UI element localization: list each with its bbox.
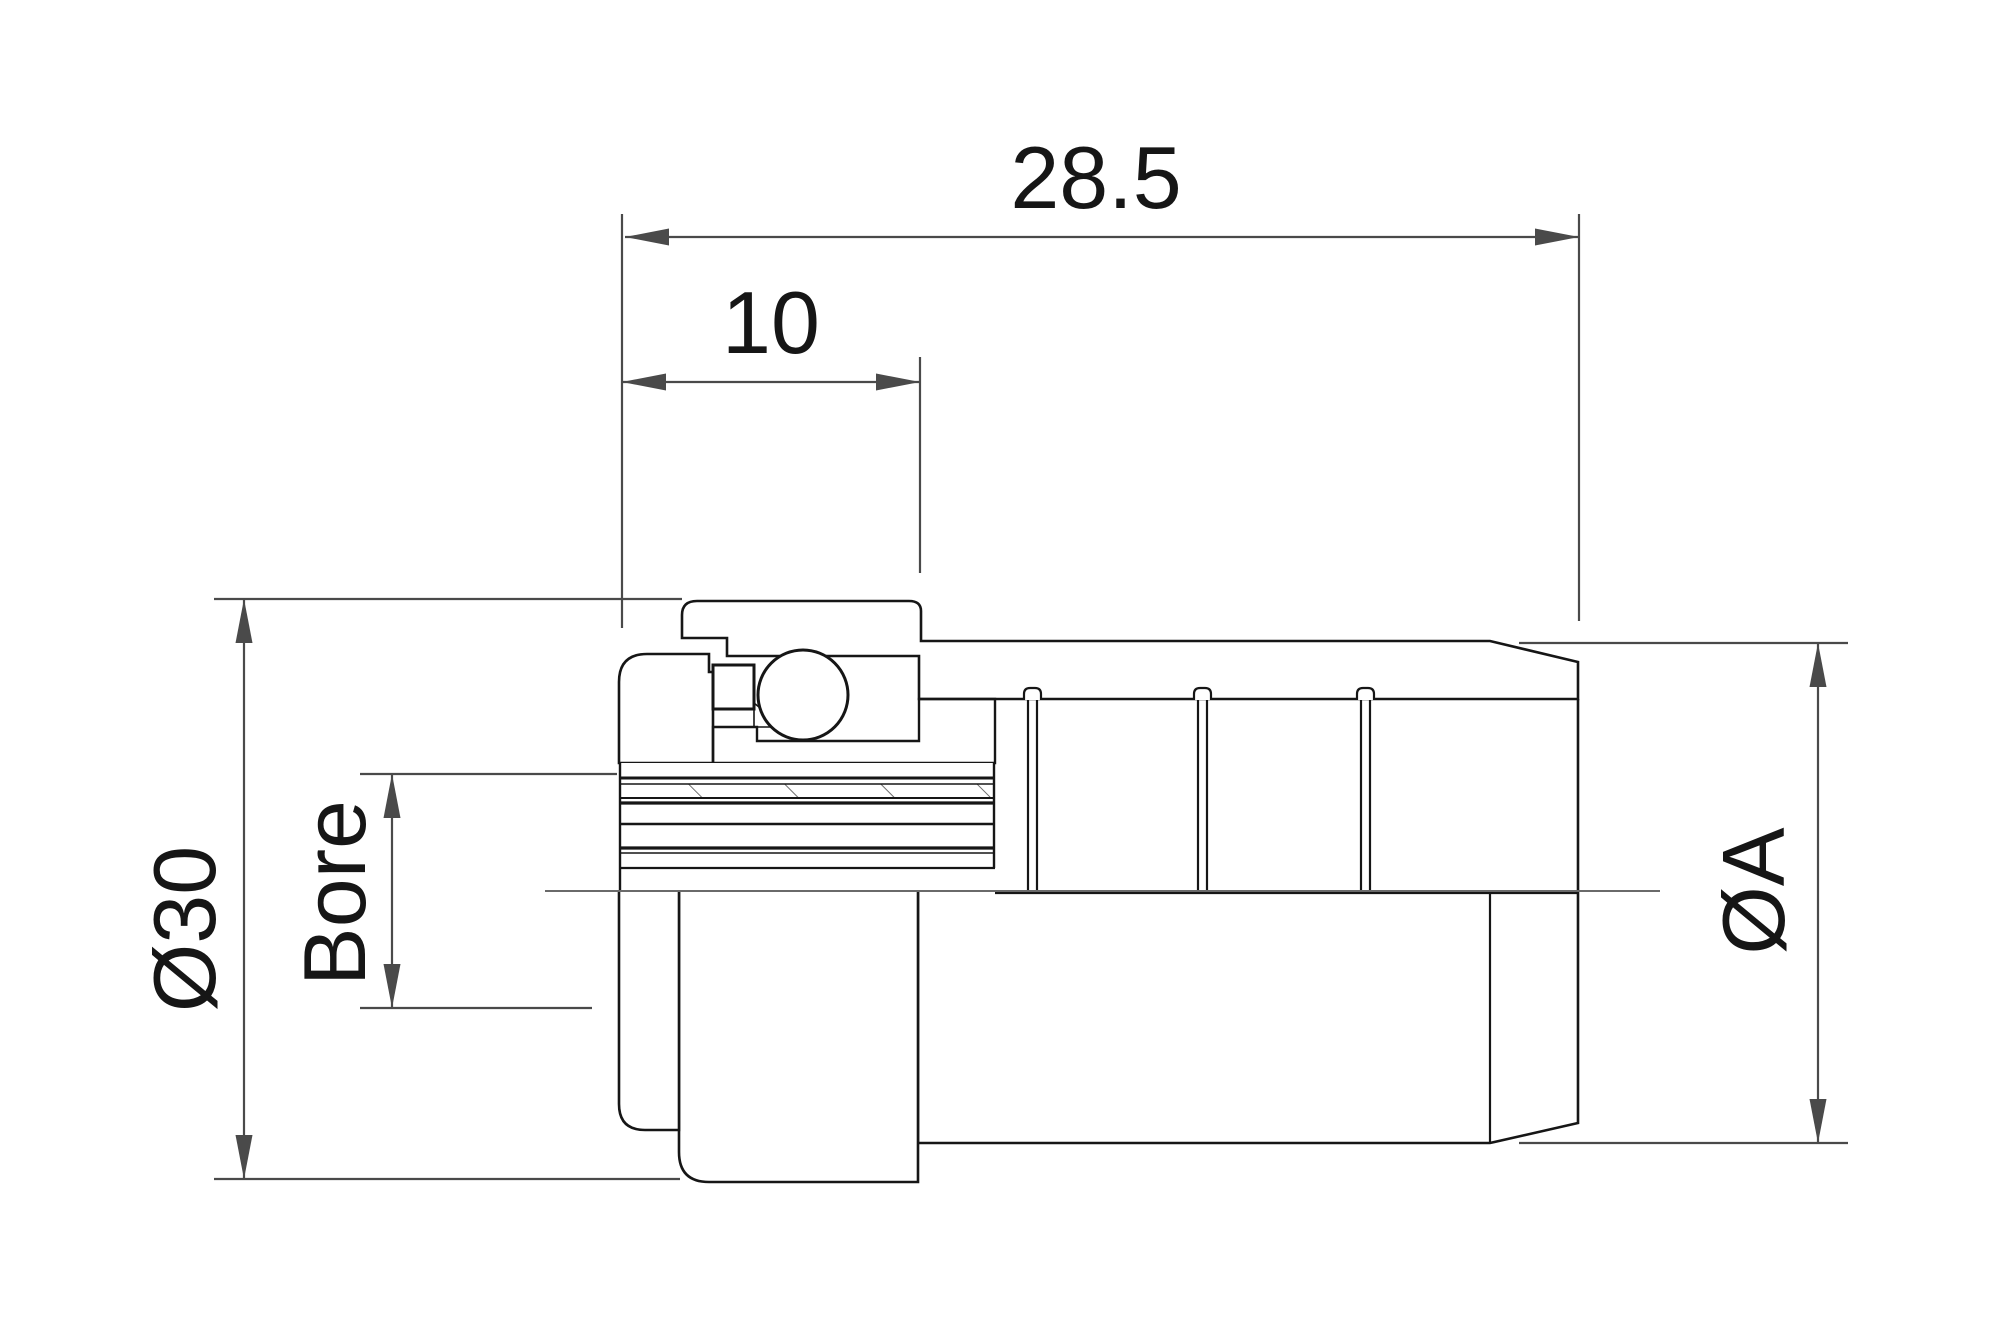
- technical-drawing: 28.5 10 Ø30 Bore ØA: [0, 0, 2000, 1333]
- bearing-ball: [758, 650, 848, 740]
- dimension-overall-length: 28.5: [622, 128, 1579, 628]
- arrow-left: [622, 374, 666, 391]
- arrow-left: [625, 229, 669, 246]
- exterior-lower-half: [619, 891, 1578, 1182]
- arrow-up: [236, 599, 253, 643]
- arrow-right: [876, 374, 920, 391]
- dim-label-bore: Bore: [285, 800, 384, 986]
- slit-3: [1357, 688, 1374, 893]
- arrow-up: [1810, 643, 1827, 687]
- arrow-right: [1535, 229, 1579, 246]
- bearing-race-block: [713, 665, 754, 709]
- arrow-down: [384, 964, 401, 1008]
- dim-label-pilot-length: 10: [722, 273, 820, 372]
- dim-label-body-diameter: ØA: [1704, 827, 1803, 954]
- arrow-up: [384, 774, 401, 818]
- arrow-down: [1810, 1099, 1827, 1143]
- sleeve-hatch-band: [620, 784, 994, 798]
- dim-label-overall-length: 28.5: [1010, 128, 1181, 227]
- slit-2: [1194, 688, 1211, 893]
- laminated-sleeve: [619, 763, 995, 891]
- dimension-outer-diameter: Ø30: [135, 599, 682, 1179]
- dimension-pilot-length: 10: [622, 273, 920, 573]
- slit-1: [1024, 688, 1041, 893]
- seal-washer-section: [619, 654, 713, 763]
- arrow-down: [236, 1135, 253, 1179]
- seal-silhouette: [619, 891, 679, 1130]
- hub-silhouette: [679, 891, 918, 1182]
- body-silhouette: [918, 891, 1578, 1143]
- body-slits: [1024, 688, 1374, 893]
- dim-label-outer-diameter: Ø30: [135, 846, 234, 1012]
- drawing-canvas: 28.5 10 Ø30 Bore ØA: [0, 0, 2000, 1333]
